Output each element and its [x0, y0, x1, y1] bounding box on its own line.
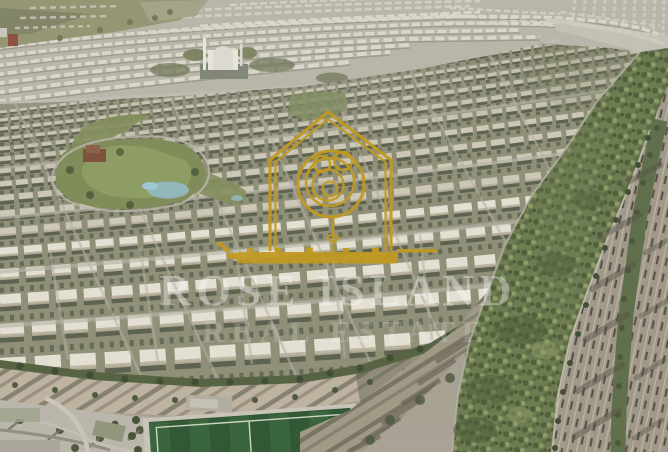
svg-text:REAL ESTATE: REAL ESTATE	[203, 314, 490, 349]
svg-text:ROSE ISLAND: ROSE ISLAND	[159, 266, 517, 315]
